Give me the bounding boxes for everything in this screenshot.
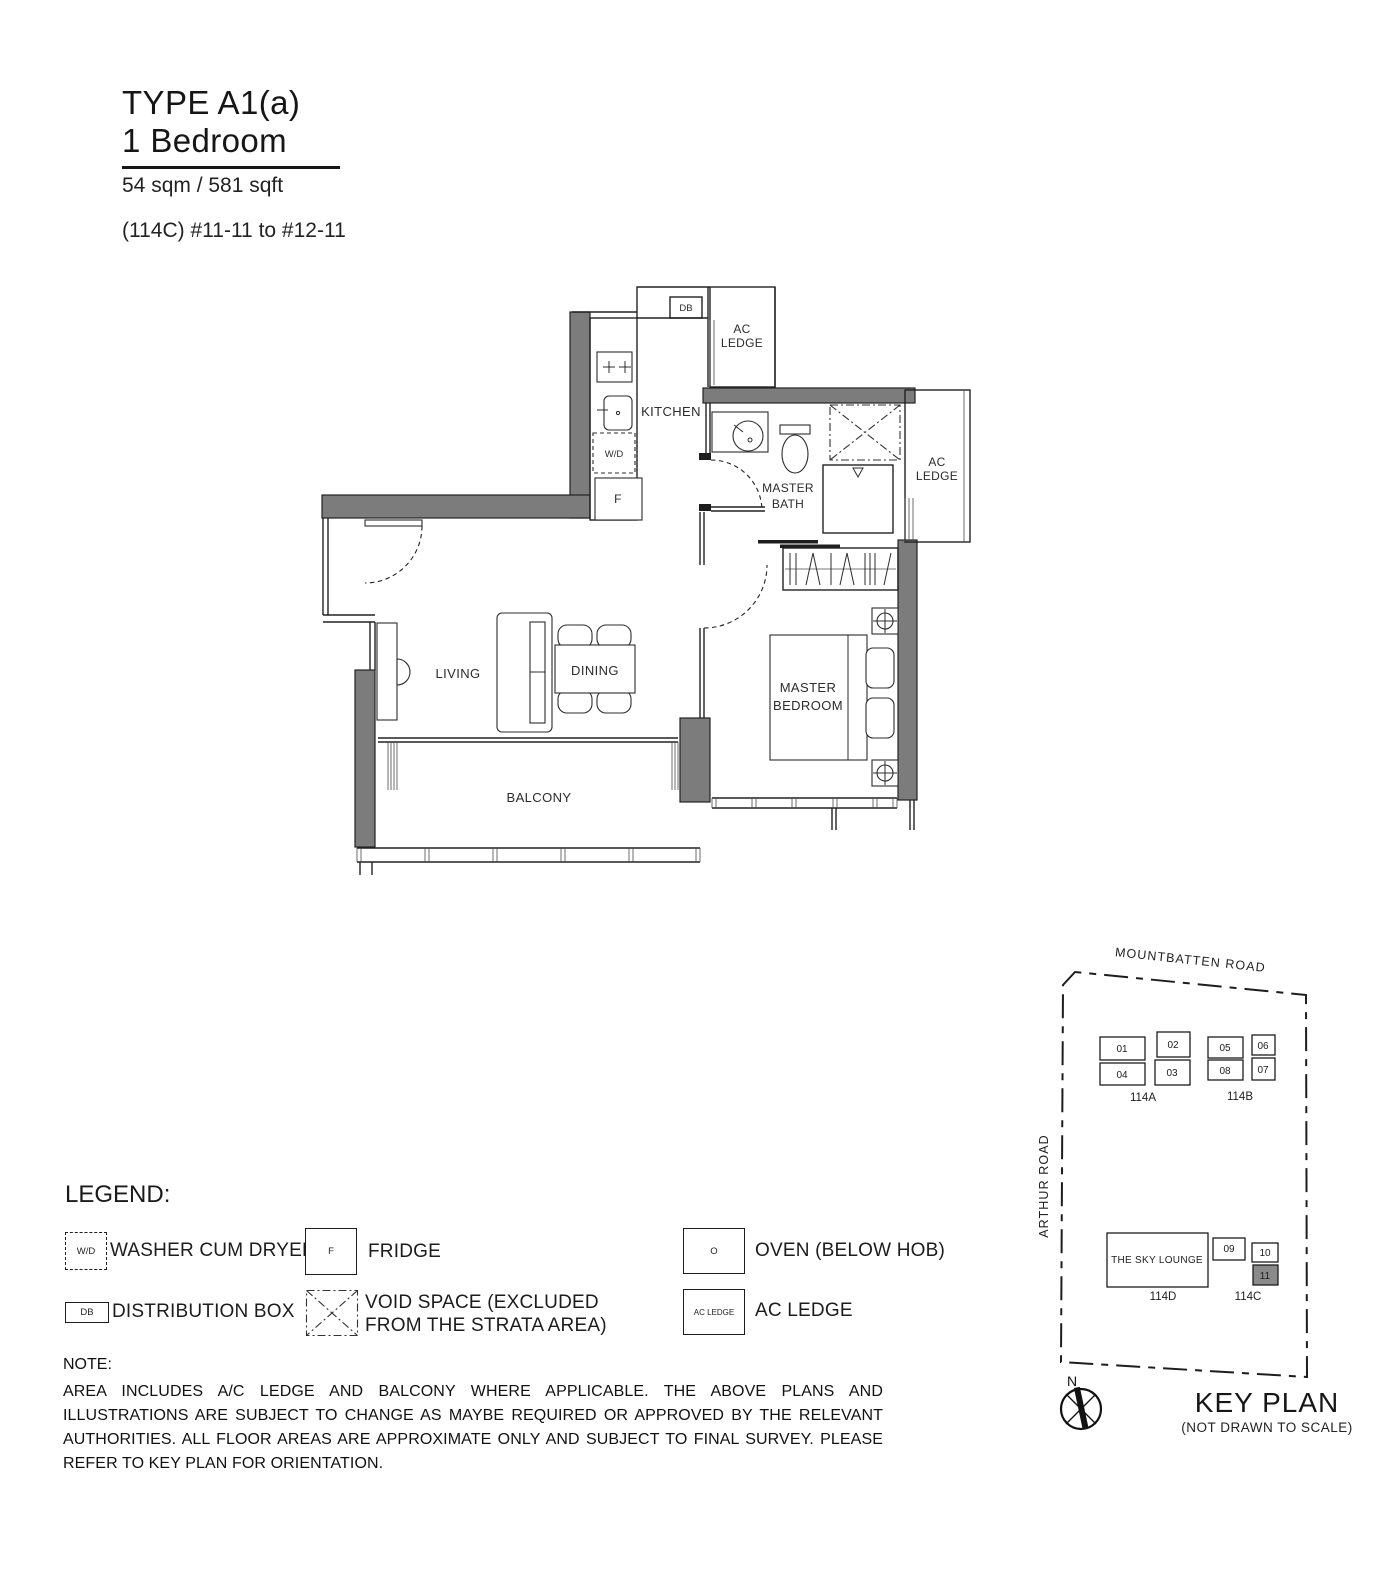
compass-north-label: N: [1067, 1373, 1077, 1389]
wd-label: W/D: [605, 449, 624, 460]
floorplan-sheet: { "header": { "type_title": "TYPE A1(a)"…: [0, 0, 1377, 1569]
ac-ledge-top-label: AC: [733, 322, 750, 336]
bath-door-swing: [711, 460, 762, 511]
legend-symbol-washer-dryer: W/D: [65, 1232, 107, 1270]
bedroom-door-swing: [704, 565, 767, 628]
bath-fixtures: [712, 405, 900, 533]
block-label-114d: 114D: [1150, 1291, 1177, 1303]
block-114c: 09 10 11 114C: [1213, 1238, 1278, 1303]
unit-area: 54 sqm / 581 sqft: [122, 174, 346, 198]
pillow: [866, 698, 894, 738]
note-title: NOTE:: [63, 1356, 112, 1374]
svg-text:10: 10: [1259, 1248, 1271, 1259]
entry-door-swing: [365, 526, 422, 583]
svg-text:07: 07: [1257, 1065, 1269, 1076]
kitchen-fixtures: [590, 318, 642, 520]
svg-text:11: 11: [1260, 1271, 1271, 1282]
svg-text:BATH: BATH: [772, 497, 804, 511]
room-label-master-bath: MASTER: [762, 481, 814, 495]
legend-label-void-space: VOID SPACE (EXCLUDEDFROM THE STRATA AREA…: [365, 1291, 607, 1337]
block-114d: THE SKY LOUNGE 114D: [1107, 1233, 1208, 1303]
kitchen-sink: [604, 396, 632, 430]
svg-text:09: 09: [1223, 1244, 1235, 1255]
legend-label-washer-dryer: WASHER CUM DRYER: [110, 1240, 316, 1262]
ac-ledge-right-label: AC: [928, 455, 945, 469]
wc-bowl: [782, 435, 808, 473]
room-label-living: LIVING: [435, 666, 480, 681]
unit-range: (114C) #11-11 to #12-11: [122, 219, 346, 243]
shower: [823, 465, 893, 533]
note-body: AREA INCLUDES A/C LEDGE AND BALCONY WHER…: [63, 1380, 883, 1476]
legend-label-fridge: FRIDGE: [368, 1241, 441, 1263]
page-subtitle: 1 Bedroom: [122, 122, 346, 160]
floor-plan: DB AC LEDGE KITCHEN W/D F MASTER BATH AC…: [320, 270, 990, 880]
basin: [733, 421, 763, 451]
legend-symbol-oven: O: [683, 1228, 745, 1274]
svg-text:03: 03: [1166, 1068, 1178, 1079]
keyplan-title: KEY PLAN: [1195, 1387, 1339, 1418]
room-label-kitchen: KITCHEN: [641, 404, 701, 419]
block-114a: 01 02 04 03 114A: [1100, 1032, 1190, 1104]
svg-text:02: 02: [1167, 1040, 1179, 1051]
pillow: [866, 648, 894, 688]
header: TYPE A1(a) 1 Bedroom 54 sqm / 581 sqft (…: [122, 84, 346, 243]
legend-label-oven: OVEN (BELOW HOB): [755, 1240, 945, 1262]
svg-text:06: 06: [1257, 1041, 1269, 1052]
compass-icon: N: [1061, 1373, 1101, 1429]
svg-text:LEDGE: LEDGE: [916, 469, 958, 483]
page-title: TYPE A1(a): [122, 84, 346, 122]
void-space: [830, 405, 900, 460]
svg-text:BEDROOM: BEDROOM: [773, 698, 843, 713]
block-114b: 05 06 08 07 114B: [1208, 1035, 1275, 1103]
key-plan: MOUNTBATTEN ROAD ARTHUR ROAD 01 02 04 03…: [1030, 940, 1377, 1450]
legend-label-ac-ledge: AC LEDGE: [755, 1300, 853, 1322]
svg-text:01: 01: [1116, 1044, 1128, 1055]
road-label-mountbatten: MOUNTBATTEN ROAD: [1114, 945, 1266, 975]
room-label-dining: DINING: [571, 663, 619, 678]
room-label-master-bedroom: MASTER: [780, 680, 837, 695]
legend-symbol-ac-ledge: AC LEDGE: [683, 1289, 745, 1335]
title-underline: [122, 166, 340, 169]
legend-title: LEGEND:: [65, 1181, 170, 1209]
road-label-arthur: ARTHUR ROAD: [1037, 1134, 1051, 1238]
keyplan-subtitle: (NOT DRAWN TO SCALE): [1181, 1420, 1353, 1435]
room-label-balcony: BALCONY: [507, 790, 572, 805]
wc-cistern: [780, 425, 810, 434]
db-label: DB: [679, 303, 692, 314]
legend-symbol-void-space: [305, 1289, 359, 1337]
block-label-114c: 114C: [1235, 1291, 1262, 1303]
svg-text:LEDGE: LEDGE: [721, 336, 763, 350]
sky-lounge-label: THE SKY LOUNGE: [1111, 1255, 1203, 1266]
entry-door-leaf: [365, 520, 422, 526]
svg-text:05: 05: [1219, 1043, 1231, 1054]
block-label-114b: 114B: [1227, 1091, 1253, 1103]
tv: [397, 659, 410, 685]
structure: [323, 287, 970, 875]
legend-label-distribution-box: DISTRIBUTION BOX: [112, 1301, 295, 1323]
tv-console: [377, 623, 397, 720]
legend-symbol-fridge: F: [305, 1228, 357, 1275]
svg-text:04: 04: [1116, 1070, 1128, 1081]
bedroom-furniture: [770, 548, 898, 786]
walls: [322, 312, 917, 847]
block-label-114a: 114A: [1130, 1092, 1156, 1104]
legend-symbol-distribution-box: DB: [65, 1302, 109, 1323]
svg-text:08: 08: [1219, 1066, 1231, 1077]
fridge-label: F: [614, 492, 622, 506]
